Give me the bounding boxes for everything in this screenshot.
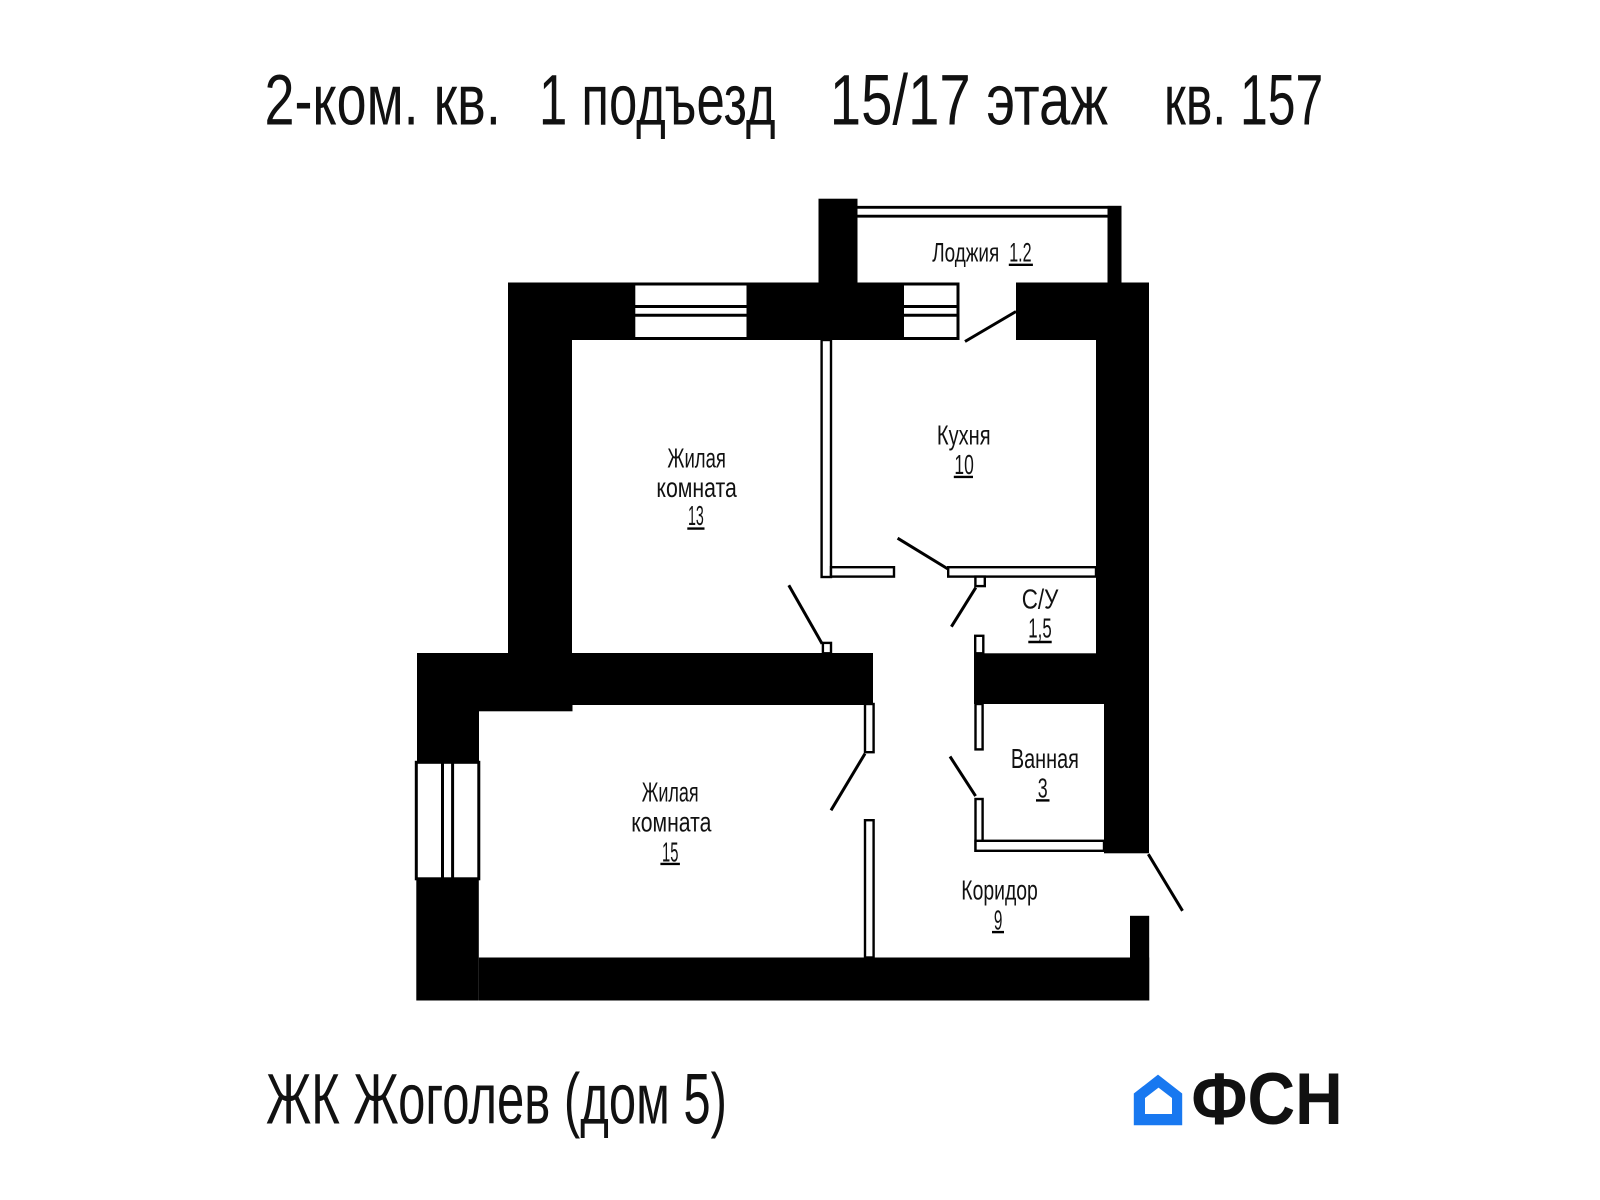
svg-text:Лоджия: Лоджия bbox=[932, 238, 999, 268]
svg-text:комната: комната bbox=[656, 472, 737, 503]
svg-text:ЖК Жоголев (дом 5): ЖК Жоголев (дом 5) bbox=[266, 1060, 727, 1139]
svg-text:3: 3 bbox=[1038, 773, 1048, 804]
svg-text:1.2: 1.2 bbox=[1009, 238, 1031, 268]
svg-text:С/У: С/У bbox=[1022, 583, 1059, 614]
svg-text:2-ком. кв.: 2-ком. кв. bbox=[265, 62, 501, 141]
svg-text:1 подъезд: 1 подъезд bbox=[539, 62, 776, 141]
svg-text:Жилая: Жилая bbox=[642, 777, 699, 808]
svg-text:9: 9 bbox=[994, 904, 1003, 935]
svg-text:1,5: 1,5 bbox=[1028, 613, 1051, 644]
svg-text:13: 13 bbox=[688, 500, 704, 531]
svg-text:Кухня: Кухня bbox=[937, 419, 991, 450]
svg-text:комната: комната bbox=[631, 807, 712, 838]
svg-text:кв. 157: кв. 157 bbox=[1164, 62, 1323, 141]
svg-text:10: 10 bbox=[954, 449, 973, 480]
svg-text:Жилая: Жилая bbox=[667, 443, 726, 474]
svg-text:15/17 этаж: 15/17 этаж bbox=[830, 62, 1109, 141]
svg-text:Ванная: Ванная bbox=[1011, 743, 1079, 774]
svg-text:Коридор: Коридор bbox=[961, 875, 1038, 906]
svg-text:ФСН: ФСН bbox=[1191, 1059, 1343, 1140]
